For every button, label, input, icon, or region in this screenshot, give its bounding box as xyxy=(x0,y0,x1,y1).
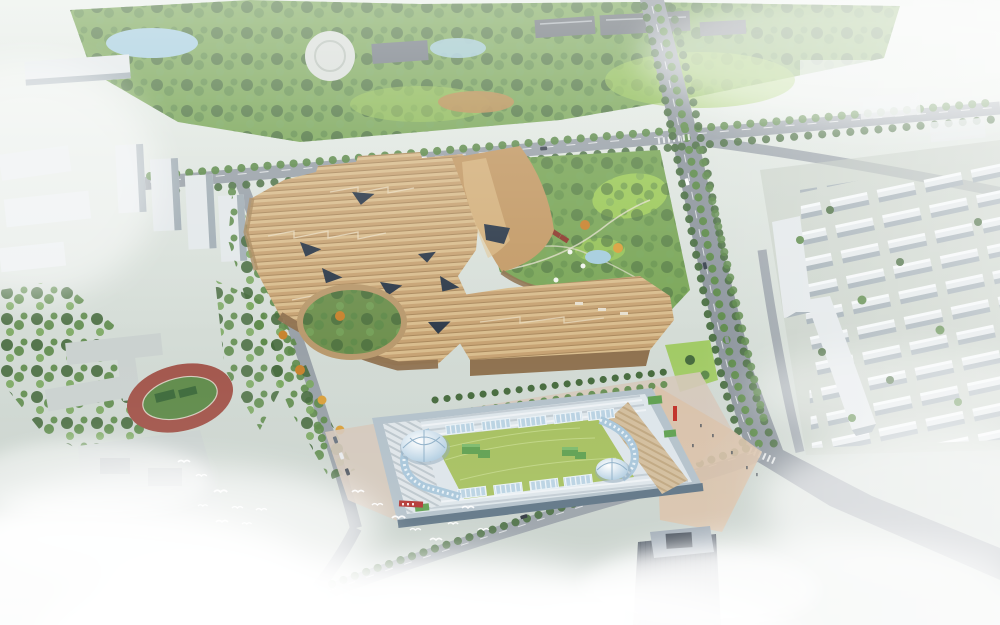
screenshot-root: aerial architectural rendering xyxy=(0,0,1000,625)
aerial-rendering-canvas: aerial architectural rendering xyxy=(0,0,1000,625)
